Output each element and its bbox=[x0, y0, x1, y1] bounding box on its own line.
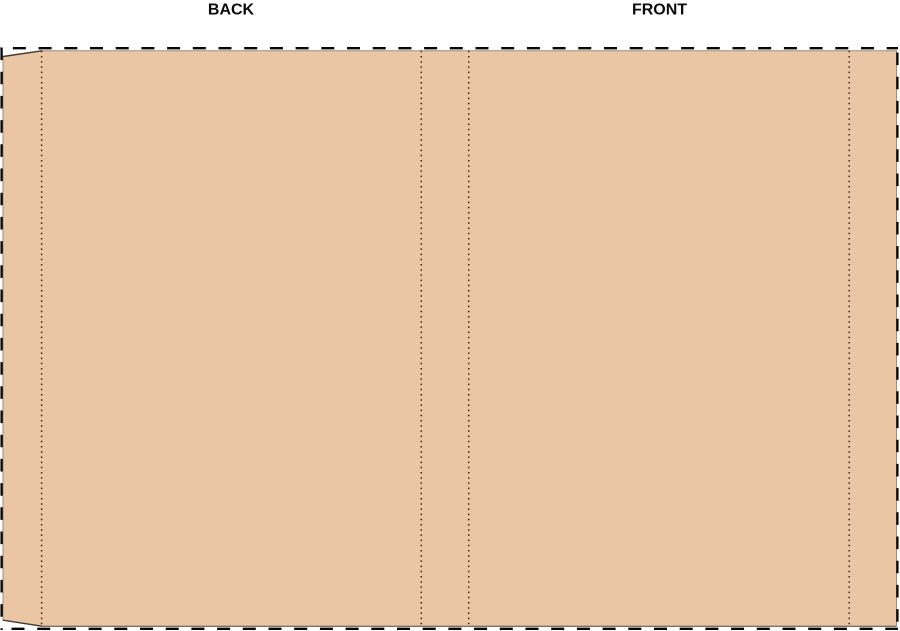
svg-text:FRONT: FRONT bbox=[632, 2, 687, 19]
svg-text:BACK: BACK bbox=[208, 2, 255, 19]
